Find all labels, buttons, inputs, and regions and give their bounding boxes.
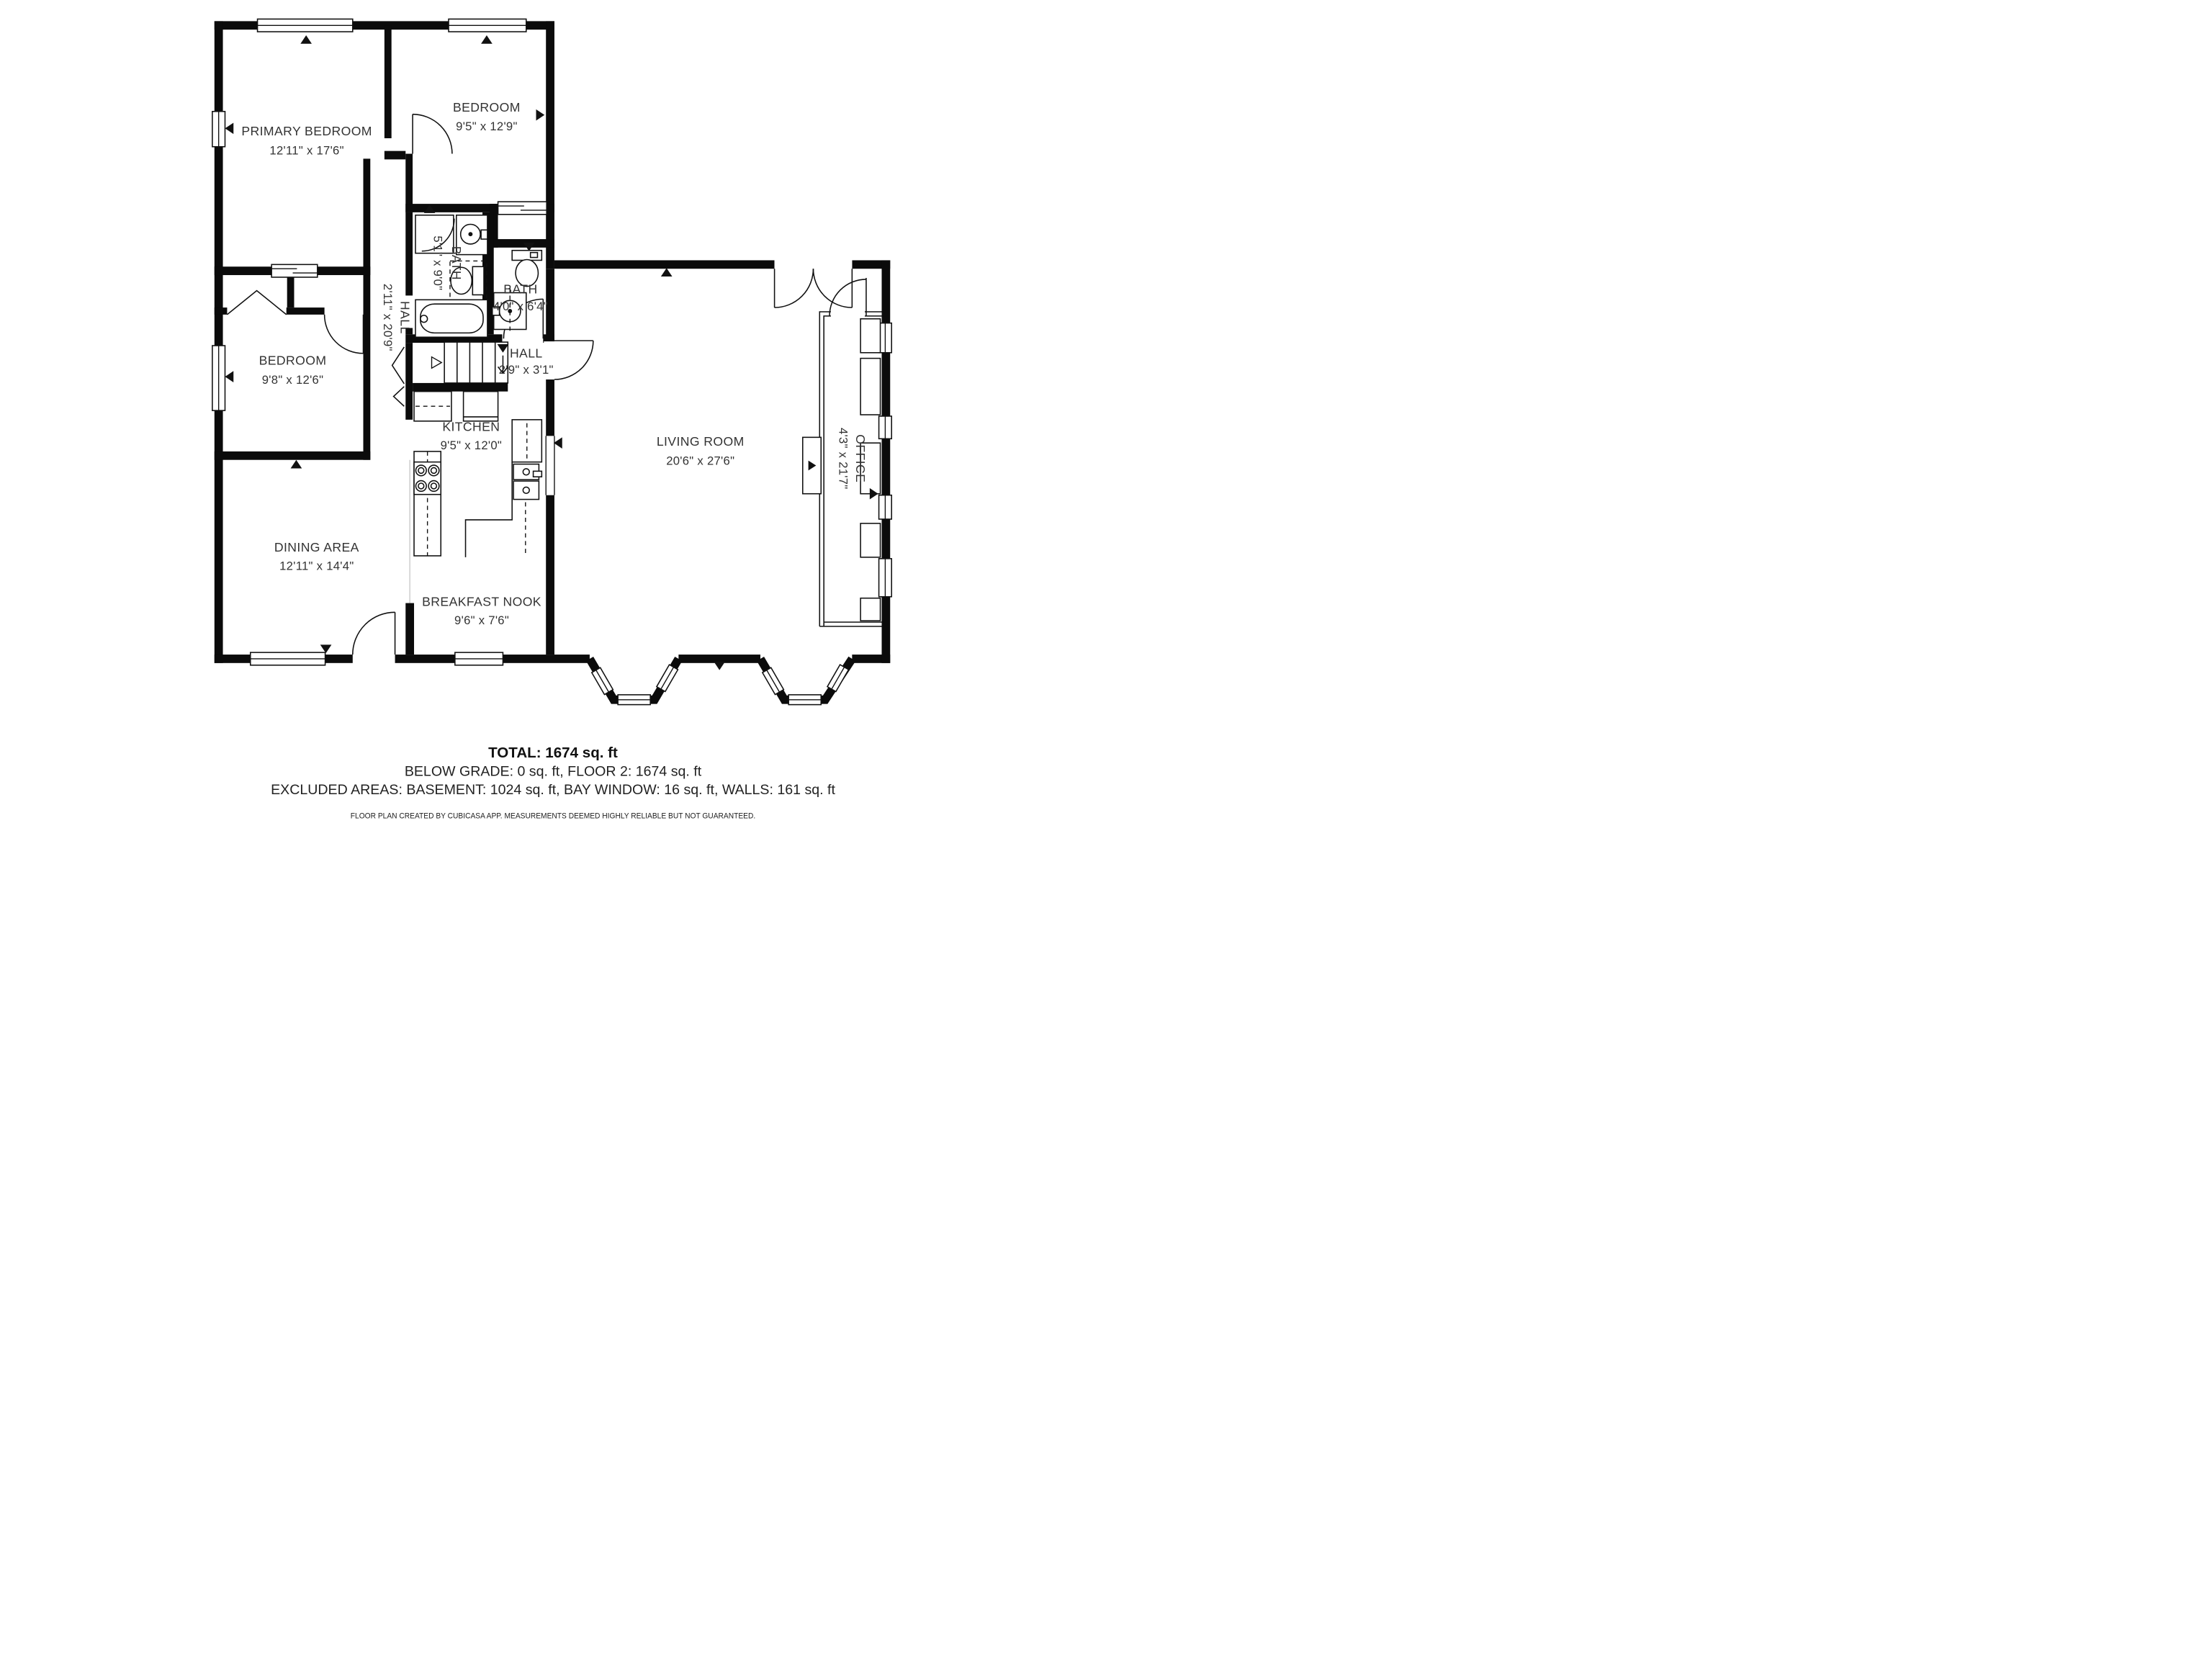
window-left-primary (212, 112, 225, 147)
entry-double-door (775, 258, 853, 308)
dims-bath2: 4'0" x 6'4" (493, 300, 548, 313)
label-kitchen: KITCHEN (442, 420, 500, 434)
window-right-3 (879, 495, 892, 519)
label-bath1: BATH (449, 246, 464, 280)
label-breakfast-nook: BREAKFAST NOOK (422, 594, 541, 608)
dims-breakfast-nook: 9'6" x 7'6" (454, 613, 509, 627)
label-bedroom-top: BEDROOM (453, 100, 521, 114)
kitchen-sink-lower (513, 481, 539, 499)
kitchen-fixtures (414, 392, 556, 557)
dims-kitchen: 9'5" x 12'0" (441, 439, 503, 452)
total-area-text: TOTAL: 1674 sq. ft (488, 745, 618, 761)
counter-L (466, 462, 513, 557)
label-living-room: LIVING ROOM (657, 434, 745, 449)
window-top-bedroom (449, 19, 526, 32)
sliding-door-primary-closet (271, 264, 318, 277)
door-bedroom-left (325, 315, 364, 354)
label-hall-small: HALL (510, 346, 543, 361)
below-grade-text: BELOW GRADE: 0 sq. ft, FLOOR 2: 1674 sq.… (405, 764, 702, 780)
window-right-4 (879, 559, 892, 597)
dims-primary-bedroom: 12'11" x 17'6" (269, 144, 343, 158)
dims-hall-small: 2'9" x 3'1" (499, 363, 554, 377)
window-right-2 (879, 416, 892, 439)
dims-hall-long: 2'11" x 20'9" (381, 284, 395, 351)
bay-window-right (760, 659, 852, 705)
bay-window-left (590, 659, 678, 705)
floor-plan-page: PRIMARY BEDROOM 12'11" x 17'6" BEDROOM 9… (0, 0, 1106, 829)
window-bottom-breakfast (455, 652, 503, 665)
label-hall-long: HALL (397, 301, 412, 334)
staircase (432, 342, 508, 383)
window-bottom-dining (251, 652, 325, 665)
faucet-icon (534, 471, 542, 477)
dims-bath1: 5'1" x 9'0" (431, 235, 444, 290)
window-top-primary (258, 19, 353, 32)
toilet-tank (472, 266, 484, 295)
floor-plan-drawing: PRIMARY BEDROOM 12'11" x 17'6" BEDROOM 9… (0, 0, 1106, 829)
stove (414, 462, 441, 495)
window-left-bedroom (212, 346, 225, 410)
label-primary-bedroom: PRIMARY BEDROOM (241, 124, 372, 138)
dims-dining-area: 12'11" x 14'4" (279, 559, 354, 573)
summary-block: TOTAL: 1674 sq. ft BELOW GRADE: 0 sq. ft… (271, 745, 835, 820)
stairs-direction-icon (432, 357, 442, 369)
dims-bedroom-left: 9'8" x 12'6" (262, 373, 324, 387)
label-bedroom-left: BEDROOM (259, 353, 327, 367)
dims-bedroom-top: 9'5" x 12'9" (456, 120, 518, 133)
disclaimer-text: FLOOR PLAN CREATED BY CUBICASA APP. MEAS… (351, 811, 755, 820)
pass-through (544, 436, 556, 495)
excluded-areas-text: EXCLUDED AREAS: BASEMENT: 1024 sq. ft, B… (271, 782, 835, 798)
door-dining-exterior (353, 612, 395, 655)
door-bedroom-top (413, 114, 452, 154)
dims-living-room: 20'6" x 27'6" (666, 454, 734, 468)
dims-office: 4'3" x 21'7" (837, 428, 850, 490)
sliding-door-bedroom-closet (498, 202, 547, 215)
label-office: OFFICE (853, 434, 868, 482)
label-dining-area: DINING AREA (274, 540, 359, 554)
label-bath2: BATH (503, 282, 537, 297)
